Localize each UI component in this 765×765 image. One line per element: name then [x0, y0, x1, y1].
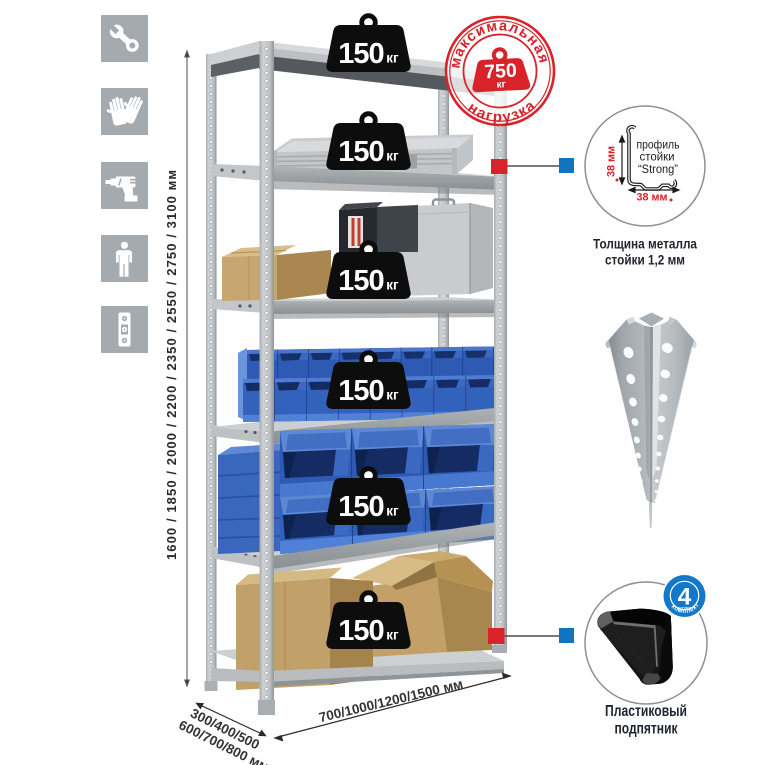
svg-text:подпятник: подпятник [615, 721, 678, 738]
svg-text:“Strong”: “Strong” [638, 162, 678, 176]
svg-text:кг: кг [496, 79, 506, 90]
svg-text:38 мм: 38 мм [637, 192, 668, 204]
svg-text:1600 / 1850 / 2000 / 2200 / 23: 1600 / 1850 / 2000 / 2200 / 2350 / 2550 … [164, 170, 179, 560]
svg-text:стойки 1,2 мм: стойки 1,2 мм [605, 252, 685, 268]
svg-text:38 мм: 38 мм [606, 146, 618, 177]
svg-text:Толщина металла: Толщина металла [593, 236, 697, 252]
svg-text:Пластиковый: Пластиковый [605, 703, 687, 720]
